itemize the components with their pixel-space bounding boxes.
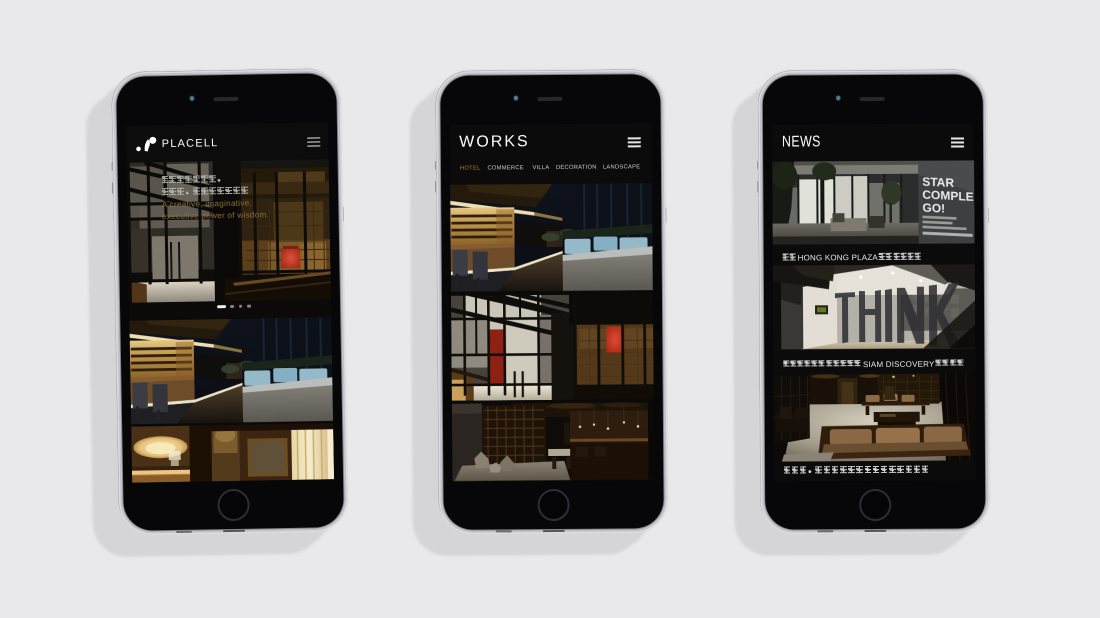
svg-text:GO!: GO!: [922, 201, 945, 216]
